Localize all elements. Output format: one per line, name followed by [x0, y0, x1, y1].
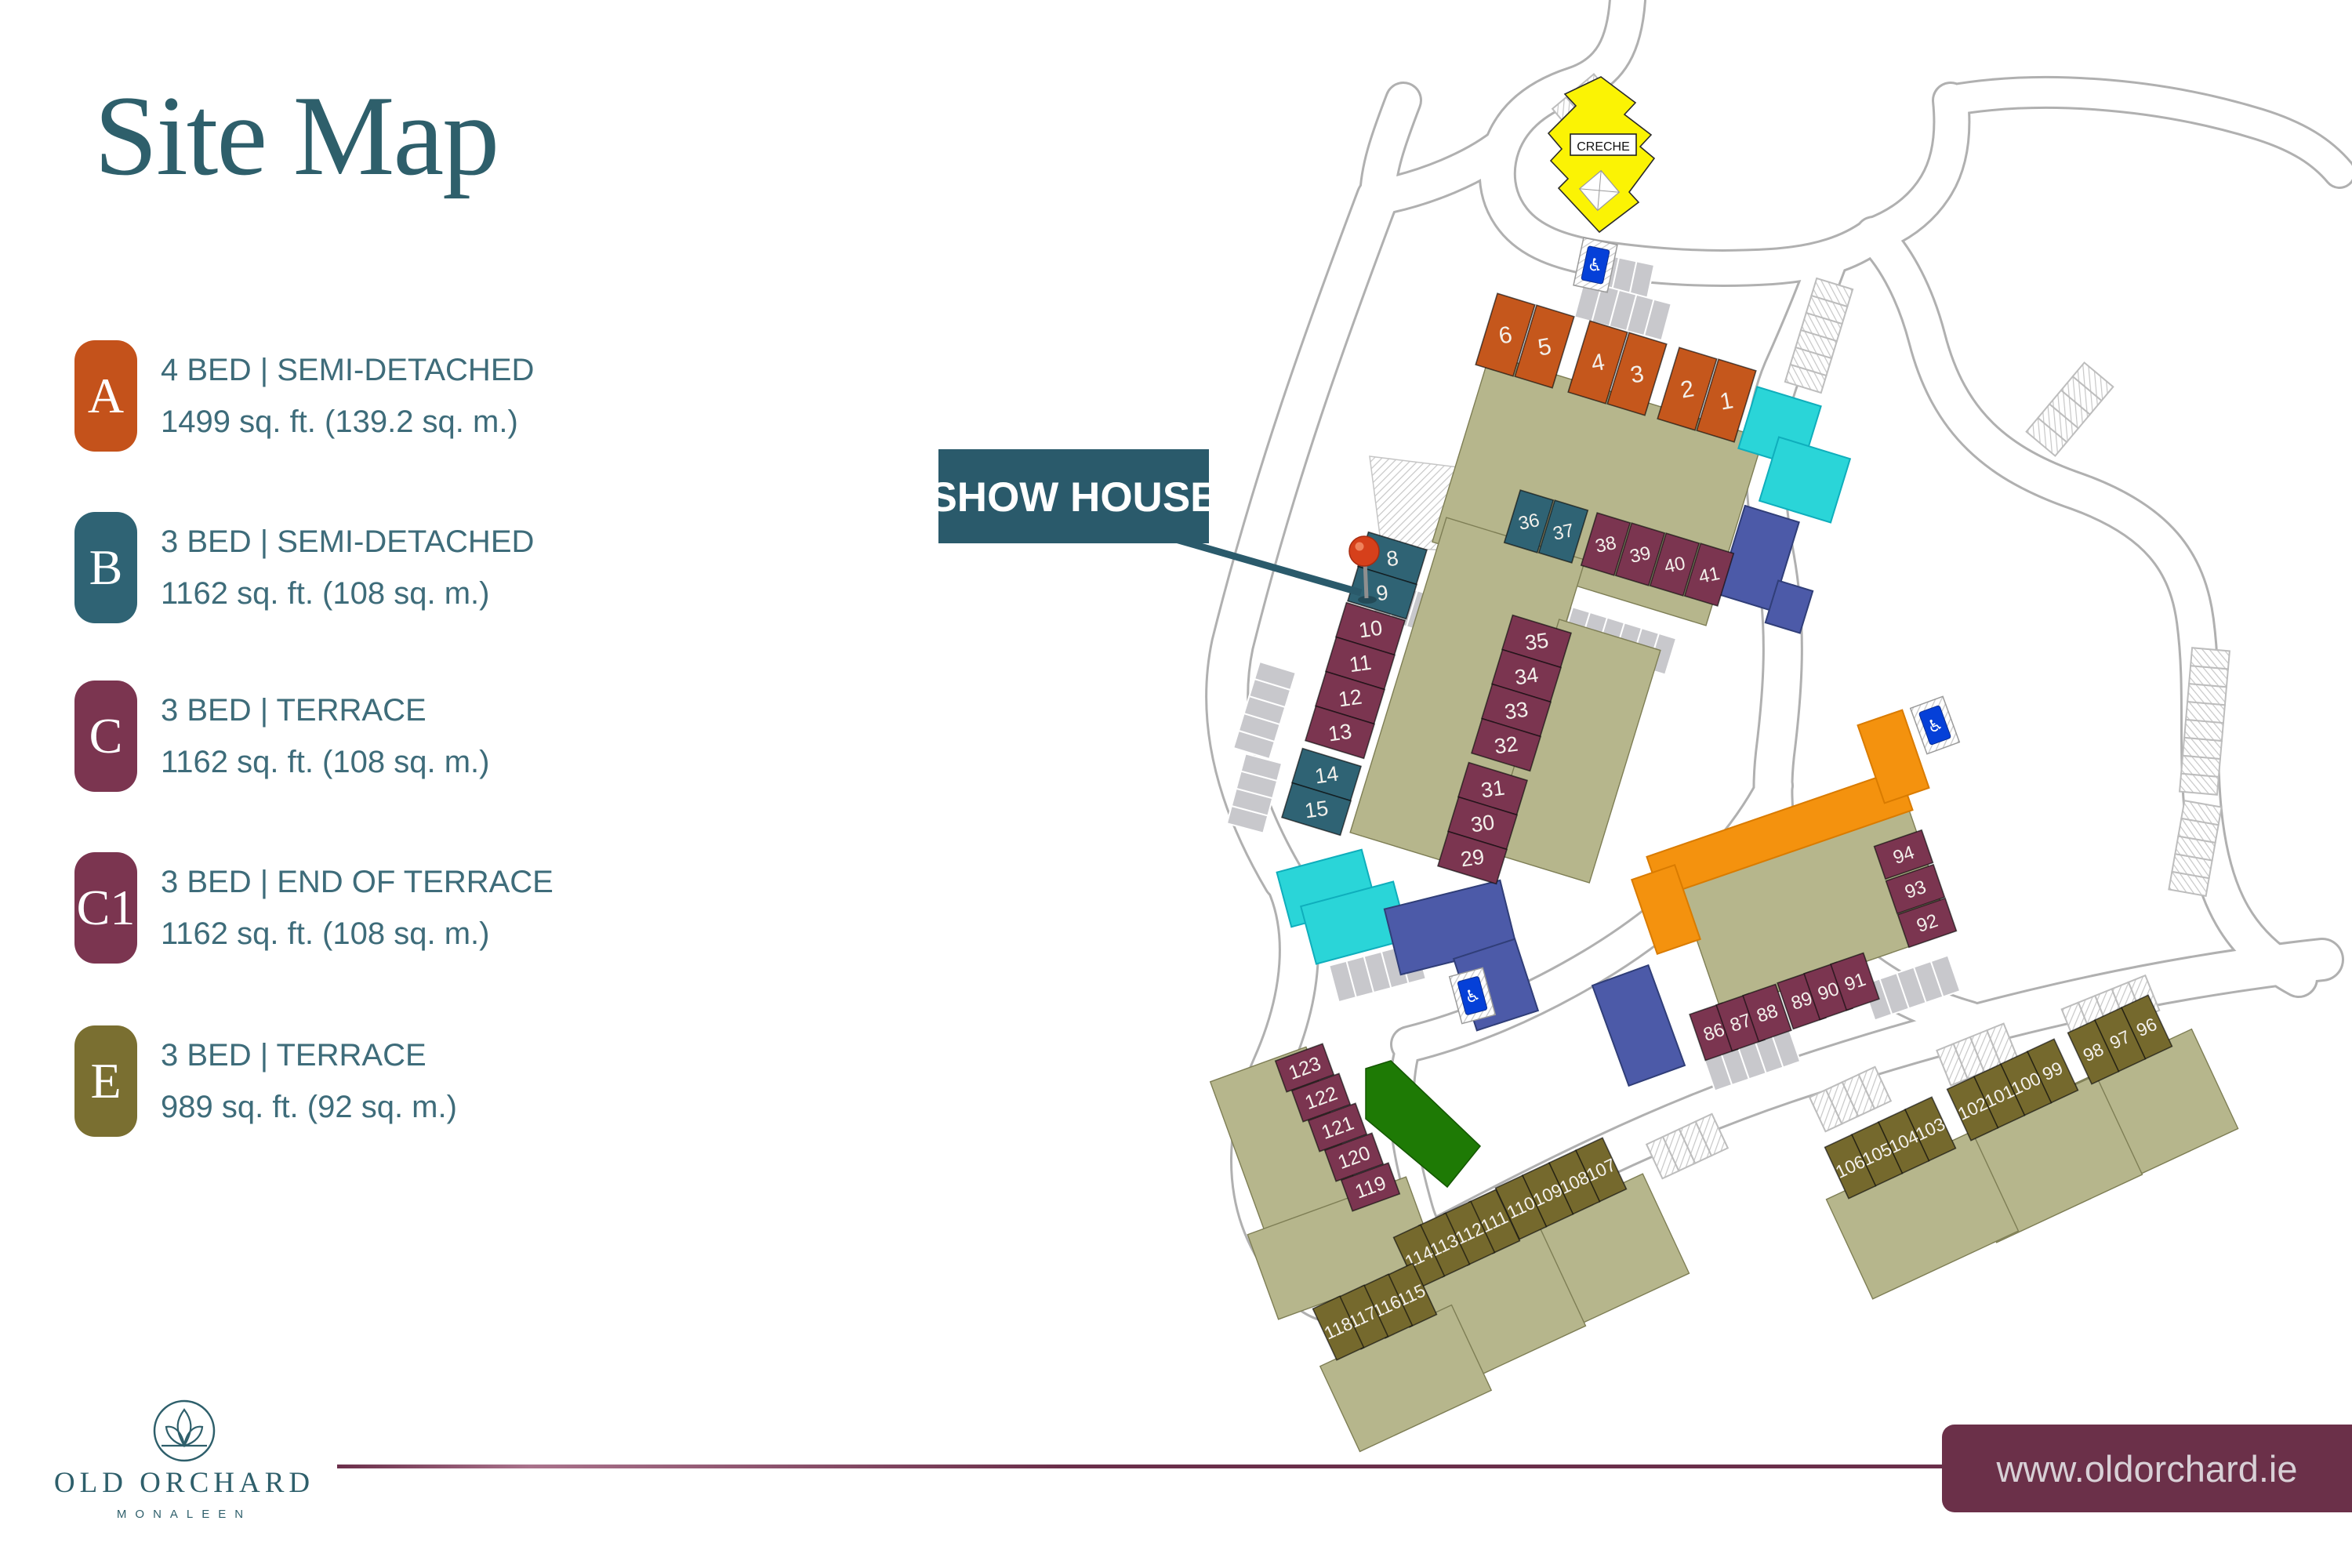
- plot-number: 29: [1459, 845, 1486, 872]
- plot-number: 41: [1697, 563, 1722, 588]
- creche-label: CRECHE: [1577, 140, 1630, 154]
- plot-number: 33: [1503, 698, 1530, 724]
- website-url[interactable]: www.oldorchard.ie: [1996, 1447, 2297, 1490]
- plot-number: 30: [1469, 811, 1496, 837]
- logo-subtitle: MONALEEN: [43, 1508, 325, 1521]
- developer-logo: OLD ORCHARD MONALEEN: [43, 1397, 325, 1521]
- plot-number: 14: [1313, 762, 1340, 789]
- show-house-label: SHOW HOUSE: [929, 474, 1218, 521]
- plot-number: 12: [1337, 685, 1363, 712]
- website-banner[interactable]: www.oldorchard.ie: [1942, 1425, 2352, 1512]
- plot-number: 40: [1662, 553, 1687, 578]
- footer-divider: [337, 1465, 1942, 1468]
- plot-number: 35: [1523, 629, 1550, 655]
- plot-number: 11: [1348, 651, 1373, 677]
- site-map: CRECHE6543213637383940418910111213141535…: [0, 0, 2352, 1568]
- plot-number: 13: [1327, 720, 1353, 746]
- plot-number: 36: [1516, 510, 1541, 535]
- plot-number: 37: [1551, 520, 1576, 545]
- accessible-bay: ♿: [1911, 696, 1960, 753]
- plot-number: 15: [1303, 797, 1330, 823]
- parking-strip: [2027, 363, 2114, 456]
- plot-number: 39: [1628, 543, 1653, 568]
- logo-name: OLD ORCHARD: [43, 1466, 325, 1500]
- plot-number: 10: [1357, 616, 1384, 643]
- plot-number: 32: [1493, 732, 1519, 759]
- show-house-annotation: SHOW HOUSE: [929, 449, 1379, 604]
- plot-number: 38: [1593, 532, 1618, 557]
- lotus-logo-icon: [151, 1397, 218, 1465]
- plot-number: 31: [1479, 776, 1506, 803]
- plot-number: 34: [1513, 663, 1540, 690]
